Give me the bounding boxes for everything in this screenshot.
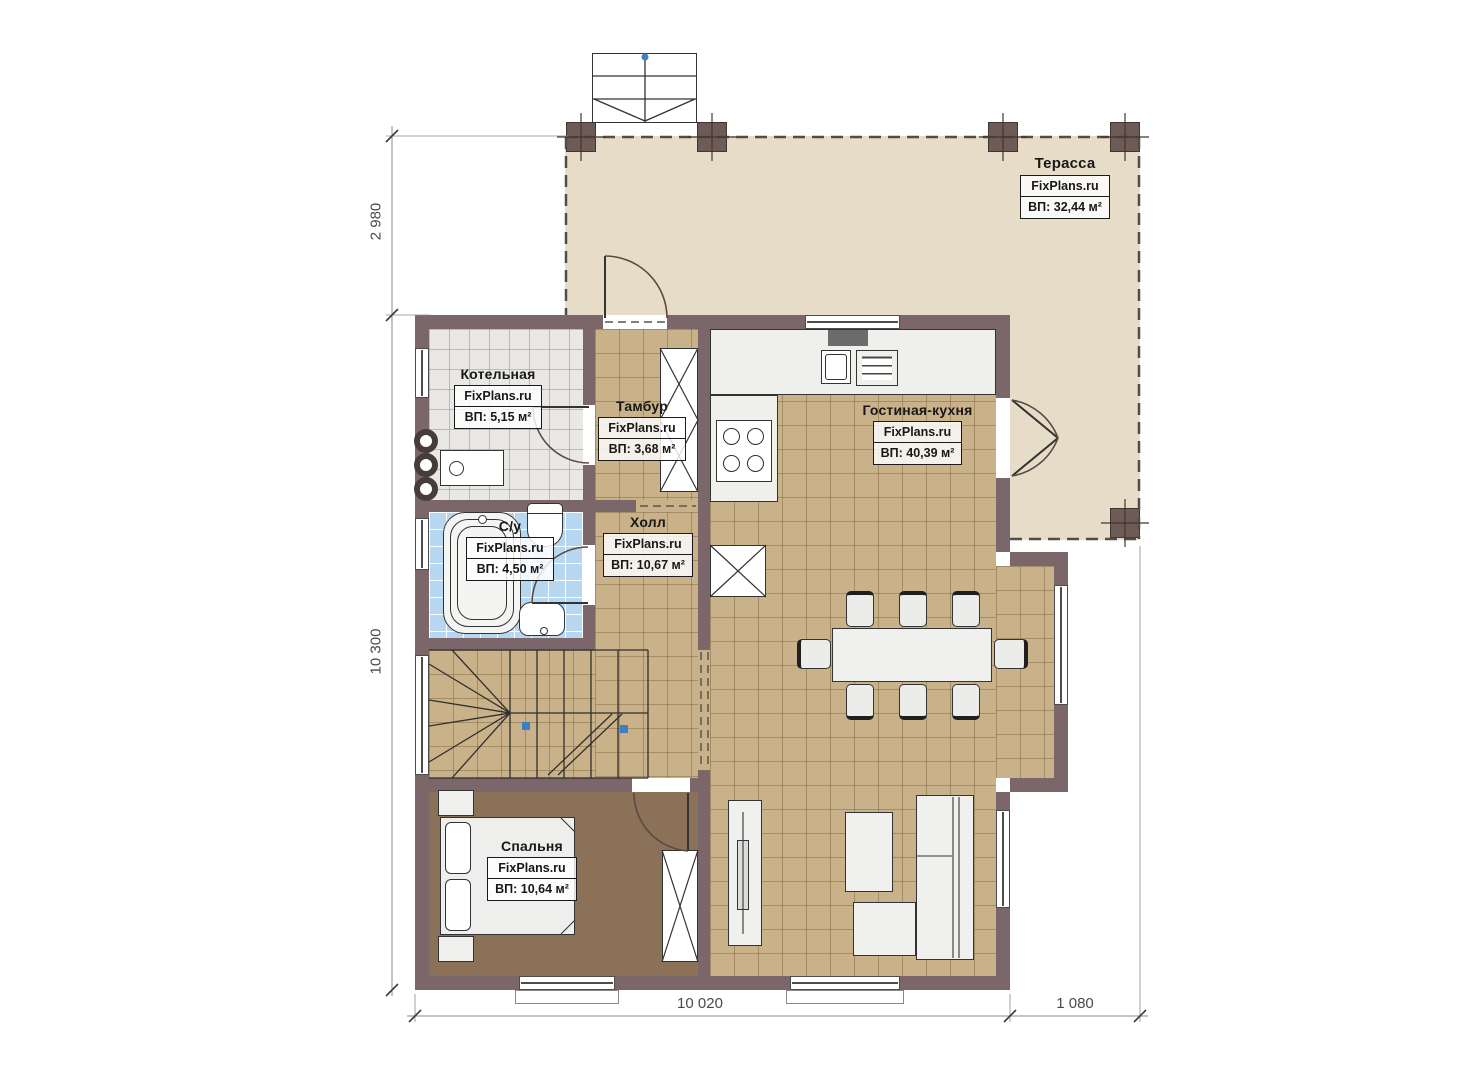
wall-under-boiler	[415, 500, 636, 512]
room-title: Котельная	[442, 366, 554, 382]
coffee-table	[845, 812, 893, 892]
bay-window	[1054, 585, 1068, 705]
kitchen-sink	[821, 350, 851, 384]
bedroom-window	[519, 976, 615, 990]
brand-watermark: FixPlans.ru	[455, 386, 541, 406]
brand-watermark: FixPlans.ru	[874, 422, 962, 442]
dining-table	[832, 628, 992, 682]
boiler-sink	[449, 461, 464, 476]
room-label-hall: Холл FixPlans.ru ВП: 10,67 м²	[598, 514, 698, 577]
tambour-hall-opening	[636, 500, 698, 512]
wardrobe	[662, 850, 698, 962]
room-info-box: FixPlans.ru ВП: 32,44 м²	[1020, 175, 1110, 219]
dining-chair	[899, 591, 927, 627]
brand-watermark: FixPlans.ru	[467, 538, 553, 558]
nightstand	[438, 936, 474, 962]
kitchen-window	[805, 315, 900, 329]
hall-living-opening	[698, 650, 710, 770]
terrace-column	[566, 122, 596, 152]
room-title: Спальня	[472, 838, 592, 854]
room-label-bathroom: С/у FixPlans.ru ВП: 4,50 м²	[455, 518, 565, 581]
living-window-sill	[786, 990, 904, 1004]
brand-watermark: FixPlans.ru	[488, 858, 576, 878]
wall-bottom	[415, 976, 1010, 990]
room-area: ВП: 10,67 м²	[604, 554, 692, 575]
room-label-tambour: Тамбур FixPlans.ru ВП: 3,68 м²	[592, 398, 692, 461]
stair-area-floor	[429, 650, 595, 778]
boiler-counter	[440, 450, 504, 486]
room-info-box: FixPlans.ru ВП: 10,67 м²	[603, 533, 693, 577]
room-area: ВП: 32,44 м²	[1021, 196, 1109, 217]
boiler-unit	[414, 453, 438, 477]
dining-chair	[899, 684, 927, 720]
wall-under-bath	[415, 638, 595, 650]
pillow	[445, 879, 471, 931]
room-area: ВП: 10,64 м²	[488, 878, 576, 899]
room-info-box: FixPlans.ru ВП: 5,15 м²	[454, 385, 542, 429]
bedroom-window-sill	[515, 990, 619, 1004]
chimney-shaft	[710, 545, 766, 597]
brand-watermark: FixPlans.ru	[599, 418, 685, 438]
room-title: Терасса	[990, 155, 1140, 172]
brand-watermark: FixPlans.ru	[1021, 176, 1109, 196]
room-area: ВП: 3,68 м²	[599, 438, 685, 459]
room-area: ВП: 5,15 м²	[455, 406, 541, 427]
wall-hall-living-lower	[698, 770, 710, 792]
terrace-column	[1110, 122, 1140, 152]
room-label-living: Гостиная-кухня FixPlans.ru ВП: 40,39 м²	[850, 402, 985, 465]
terrace-door-opening	[996, 398, 1010, 478]
entry-door-opening	[603, 315, 667, 329]
stove-burner	[747, 428, 764, 445]
boiler-unit	[414, 477, 438, 501]
dining-chair	[952, 684, 980, 720]
stove	[716, 420, 772, 482]
nightstand	[438, 790, 474, 816]
dimension-house-depth: 10 300	[368, 607, 385, 697]
wall-left	[415, 315, 429, 990]
boiler-window	[415, 348, 429, 398]
floor-plan: Терасса FixPlans.ru ВП: 32,44 м² Котельн…	[0, 0, 1473, 1080]
terrace-column	[988, 122, 1018, 152]
terrace-column	[1110, 508, 1140, 538]
wall-bay-bottom	[1010, 778, 1068, 792]
wall-top	[415, 315, 1010, 329]
sofa-chaise	[853, 902, 916, 956]
room-area: ВП: 4,50 м²	[467, 558, 553, 579]
stair-window	[415, 655, 429, 775]
stove-burner	[723, 428, 740, 445]
brand-watermark: FixPlans.ru	[604, 534, 692, 554]
wall-hall-living-upper	[698, 329, 710, 650]
sink-drain	[540, 627, 548, 635]
bathroom-door-opening	[583, 545, 595, 605]
stove-burner	[723, 455, 740, 472]
room-label-bedroom: Спальня FixPlans.ru ВП: 10,64 м²	[472, 838, 592, 901]
room-title: Холл	[598, 514, 698, 530]
boiler-unit	[414, 429, 438, 453]
dining-chair	[952, 591, 980, 627]
dining-chair	[846, 591, 874, 627]
terrace-column	[697, 122, 727, 152]
terrace-floor-right	[1010, 315, 1140, 540]
pillow	[445, 822, 471, 874]
dimension-house-width: 10 020	[655, 995, 745, 1012]
living-window-bottom	[790, 976, 900, 990]
room-title: Гостиная-кухня	[850, 402, 985, 418]
living-window-right	[996, 810, 1010, 908]
sofa	[916, 795, 974, 960]
room-info-box: FixPlans.ru ВП: 10,64 м²	[487, 857, 577, 901]
kitchen-vent	[856, 350, 898, 386]
bathroom-sink	[519, 602, 565, 636]
room-title: С/у	[455, 518, 565, 534]
room-title: Тамбур	[592, 398, 692, 414]
bathroom-window	[415, 518, 429, 570]
toilet-tank-line	[528, 513, 562, 514]
room-info-box: FixPlans.ru ВП: 3,68 м²	[598, 417, 686, 461]
room-label-boiler: Котельная FixPlans.ru ВП: 5,15 м²	[442, 366, 554, 429]
bedroom-door-opening	[632, 778, 690, 792]
room-label-terrace: Терасса FixPlans.ru ВП: 32,44 м²	[990, 155, 1140, 219]
dining-chair	[994, 639, 1028, 669]
cooker-hood	[828, 330, 868, 346]
stove-burner	[747, 455, 764, 472]
dining-chair	[846, 684, 874, 720]
sink-basin	[825, 354, 847, 380]
exterior-stair	[592, 53, 697, 123]
bay-floor	[996, 566, 1054, 778]
dining-chair	[797, 639, 831, 669]
tv	[737, 840, 749, 910]
room-info-box: FixPlans.ru ВП: 4,50 м²	[466, 537, 554, 581]
wall-bedroom-living	[698, 792, 710, 976]
dimension-terrace-depth: 2 980	[368, 177, 385, 267]
dimension-terrace-overhang: 1 080	[1030, 995, 1120, 1012]
room-area: ВП: 40,39 м²	[874, 442, 962, 463]
room-info-box: FixPlans.ru ВП: 40,39 м²	[873, 421, 963, 465]
